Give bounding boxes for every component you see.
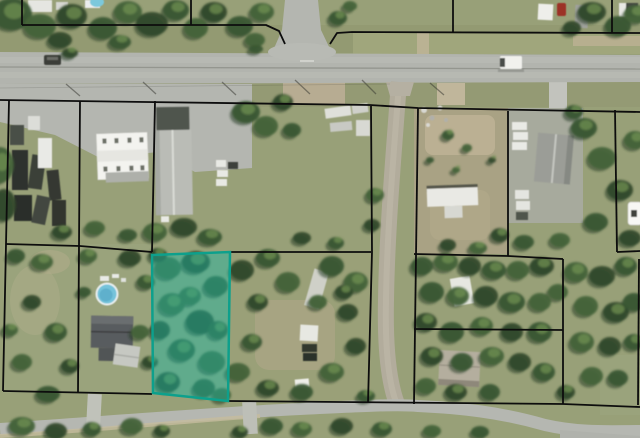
parcel-boundary-line — [152, 101, 155, 252]
parcel-boundary-line — [228, 401, 640, 407]
parcel-boundary-line — [414, 108, 418, 404]
parcel-boundary-overlay — [0, 0, 640, 438]
parcel-boundary-line — [22, 25, 285, 44]
parcel-boundary-line — [3, 101, 9, 391]
highlighted-parcel[interactable] — [152, 252, 230, 401]
parcel-boundary-line — [414, 329, 563, 330]
parcel-boundary-line — [617, 251, 640, 252]
parcel-boundary-line — [638, 259, 639, 405]
parcel-map-view[interactable] — [0, 0, 640, 438]
parcel-boundary-line — [414, 254, 563, 259]
parcel-boundary-line — [368, 106, 372, 403]
parcel-boundary-line — [615, 110, 617, 252]
parcel-boundary-line — [330, 32, 640, 44]
parcel-boundary-line — [0, 100, 640, 112]
